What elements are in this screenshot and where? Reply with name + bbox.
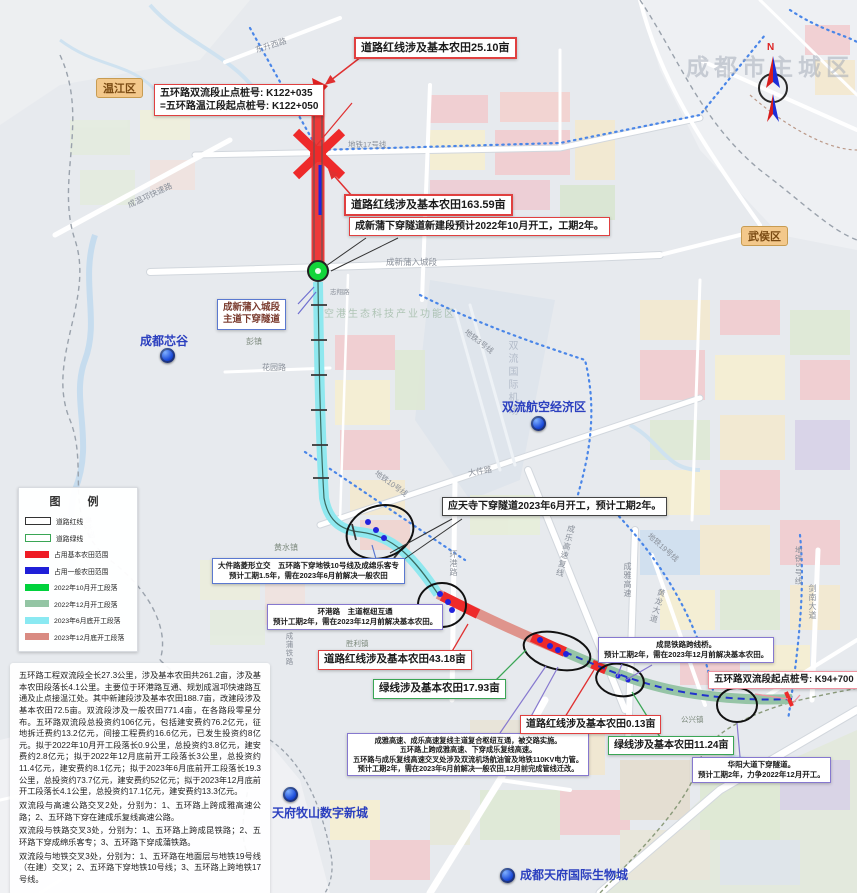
callout-endpoint-stake: 五环路双流段止点桩号: K122+035 =五环路温江段起点桩号: K122+0… [154,84,324,116]
callout-line: 成雅高速、成乐高速复线主道复合枢纽互通，被交路实施。 [353,736,583,745]
landmark-label-mushan: 天府牧山数字新城 [272,804,368,821]
notes-paragraph: 五环路工程双流段全长27.3公里，涉及基本农田共261.2亩，涉及基本农田段落长… [19,670,261,798]
callout-redline-25-10: 道路红线涉及基本农田25.10亩 [354,37,517,59]
legend-label: 占用基本农田范围 [54,549,108,559]
callout-line: 大件路菱形立交 五环路下穿地铁10号线及成绵乐客专 [218,561,399,571]
road-label-chengya-expwy: 成雅高速 [622,562,633,598]
legend-label: 道路绿线 [56,533,83,543]
legend-row: 道路红线 [25,513,131,530]
notes-paragraph: 双流段与铁路交叉3处，分别为：1、五环路上跨成昆铁路；2、五环路下穿成绵乐客专；… [19,825,261,848]
callout-chengkun-bridge: 成昆铁路跨线桥。 预计工期2年，需在2023年12月前解决基本农田。 [598,637,774,663]
callout-line: 五环路双流段止点桩号: K122+035 [160,87,318,100]
callout-line: 五环路与成乐复线高速交叉处涉及双流机场航油管及地铁110KV电力管。 [353,755,583,764]
compass-north-label: N [767,42,774,53]
landmark-label-bio-city: 成都天府国际生物城 [520,866,628,883]
callout-redline-0-13: 道路红线涉及基本农田0.13亩 [520,715,661,734]
callout-line: 成昆铁路跨线桥。 [604,640,768,650]
callout-dajianlu-interchange: 大件路菱形立交 五环路下穿地铁10号线及成绵乐客专 预计工期1.5年，需在202… [212,558,405,584]
callout-hub-interchange: 成雅高速、成乐高速复线主道复合枢纽互通，被交路实施。 五环路上跨成雅高速、下穿成… [347,733,589,776]
town-label-pengzhen: 彭镇 [246,336,262,347]
rail-label-chengpu: 成蒲铁路 [284,632,295,666]
town-label-huangshui: 黄水镇 [274,542,298,553]
legend-label: 占用一般农田范围 [54,566,108,576]
legend-swatch-basic-farmland-icon [25,551,49,558]
callout-line: 预计工期2年，需在2023年12月前解决基本农田。 [273,617,437,627]
legend-label: 道路红线 [56,516,83,526]
callout-chengxinpu-tunnel: 成新蒲下穿隧道新建段预计2022年10月开工，工期2年。 [349,217,610,236]
landmark-dot-icon [500,868,515,883]
callout-line: 华阳大道下穿隧道。 [698,760,825,770]
callout-line: 预计工期2年，需在2023年6月前解决一般农田,12月前完成管线迁改。 [353,764,583,773]
callout-line: 预计工期1.5年，需在2023年6月前解决一般农田 [218,571,399,581]
road-label-jiannan: 剑南大道 [807,584,818,620]
legend-swatch-redline-icon [25,517,51,525]
callout-line: 预计工期2年，力争2022年12月开工。 [698,770,825,780]
road-label-chengxinpu: 成新蒲入城段 [386,256,437,268]
callout-line: 环港路 主道枢纽互通 [273,607,437,617]
callout-line: 五环路上跨成雅高速、下穿成乐复线高速。 [353,745,583,754]
notes-panel: 五环路工程双流段全长27.3公里，涉及基本农田共261.2亩，涉及基本农田段落长… [10,663,270,893]
legend-row: 占用一般农田范围 [25,563,131,580]
legend-title: 图 例 [25,493,131,509]
district-pill-wenjiang: 温江区 [96,78,143,98]
callout-huayang-tunnel: 华阳大道下穿隧道。 预计工期2年，力争2022年12月开工。 [692,757,831,783]
legend-row: 占用基本农田范围 [25,546,131,563]
legend-label: 2022年12月开工段落 [54,599,117,609]
legend-label: 2023年12月底开工段落 [54,632,124,642]
callout-chengxinpu-entry: 成新蒲入城段 主道下穿隧道 [217,299,286,330]
legend-swatch-general-farmland-icon [25,567,49,574]
town-label-gongxing: 公兴镇 [681,714,704,725]
legend-row: 2023年12月底开工段落 [25,629,131,646]
legend-swatch-jun2023-icon [25,617,49,624]
callout-line: =五环路温江段起点桩号: K122+050 [160,100,318,113]
legend-swatch-dec2022-icon [25,600,49,607]
landmark-dot-icon [160,348,175,363]
callout-line: 主道下穿隧道 [223,314,280,326]
legend-swatch-oct2022-icon [25,584,49,591]
callout-redline-43-18: 道路红线涉及基本农田43.18亩 [318,650,472,670]
legend-label: 2022年10月开工段落 [54,582,117,592]
planning-map: 成都市主城区 温江区 武侯区 N 东升西路 地铁17号线 成温邛快速路 成新蒲入… [0,0,857,893]
road-label-zhixiang: 志翔路 [330,286,350,296]
legend-row: 道路绿线 [25,530,131,547]
landmark-dot-icon [531,416,546,431]
metro-5-label: 地铁5号线 [793,546,804,585]
landmark-label-shuangliu-econ: 双流航空经济区 [502,398,586,415]
callout-line: 成新蒲入城段 [223,302,280,314]
legend: 图 例 道路红线 道路绿线 占用基本农田范围 占用一般农田范围 2022年10月… [18,487,138,652]
legend-label: 2023年6月底开工段落 [54,615,120,625]
notes-paragraph: 双流段与地铁交叉3处，分别为：1、五环路在地面层与地铁19号线（在建）交叉；2、… [19,851,261,886]
area-label-konggang: 空港生态科技产业功能区 [324,305,456,320]
notes-paragraph: 双流段与高速公路交叉2处，分别为：1、五环路上跨成雅高速公路；2、五环路下穿在建… [19,800,261,823]
callout-redline-163-59: 道路红线涉及基本农田163.59亩 [344,194,513,216]
road-label-huayuan: 花园路 [262,362,286,373]
callout-greenline-17-93: 绿线涉及基本农田17.93亩 [373,679,506,699]
landmark-dot-icon [283,787,298,802]
callout-huanganglu-interchange: 环港路 主道枢纽互通 预计工期2年，需在2023年12月前解决基本农田。 [267,604,443,630]
metro-17-label: 地铁17号线 [348,139,386,150]
legend-swatch-greenline-icon [25,534,51,542]
legend-row: 2022年10月开工段落 [25,579,131,596]
callout-start-stake: 五环路双流段起点桩号: K94+700 [708,671,857,689]
town-label-shengli: 胜利镇 [346,638,369,649]
road-label-huangang: 环港路 [448,550,459,577]
callout-line: 预计工期2年，需在2023年12月前解决基本农田。 [604,650,768,660]
legend-row: 2023年6月底开工段落 [25,612,131,629]
district-pill-wuhou: 武侯区 [741,226,788,246]
landmark-label-chengdu-xingu: 成都芯谷 [140,332,188,349]
compass-needle-icon [756,44,790,134]
callout-greenline-11-24: 绿线涉及基本农田11.24亩 [608,736,734,755]
callout-yingtiansi-tunnel: 应天寺下穿隧道2023年6月开工，预计工期2年。 [442,497,667,516]
legend-swatch-dec2023-icon [25,633,49,640]
compass-rose: N [756,44,790,134]
legend-row: 2022年12月开工段落 [25,596,131,613]
